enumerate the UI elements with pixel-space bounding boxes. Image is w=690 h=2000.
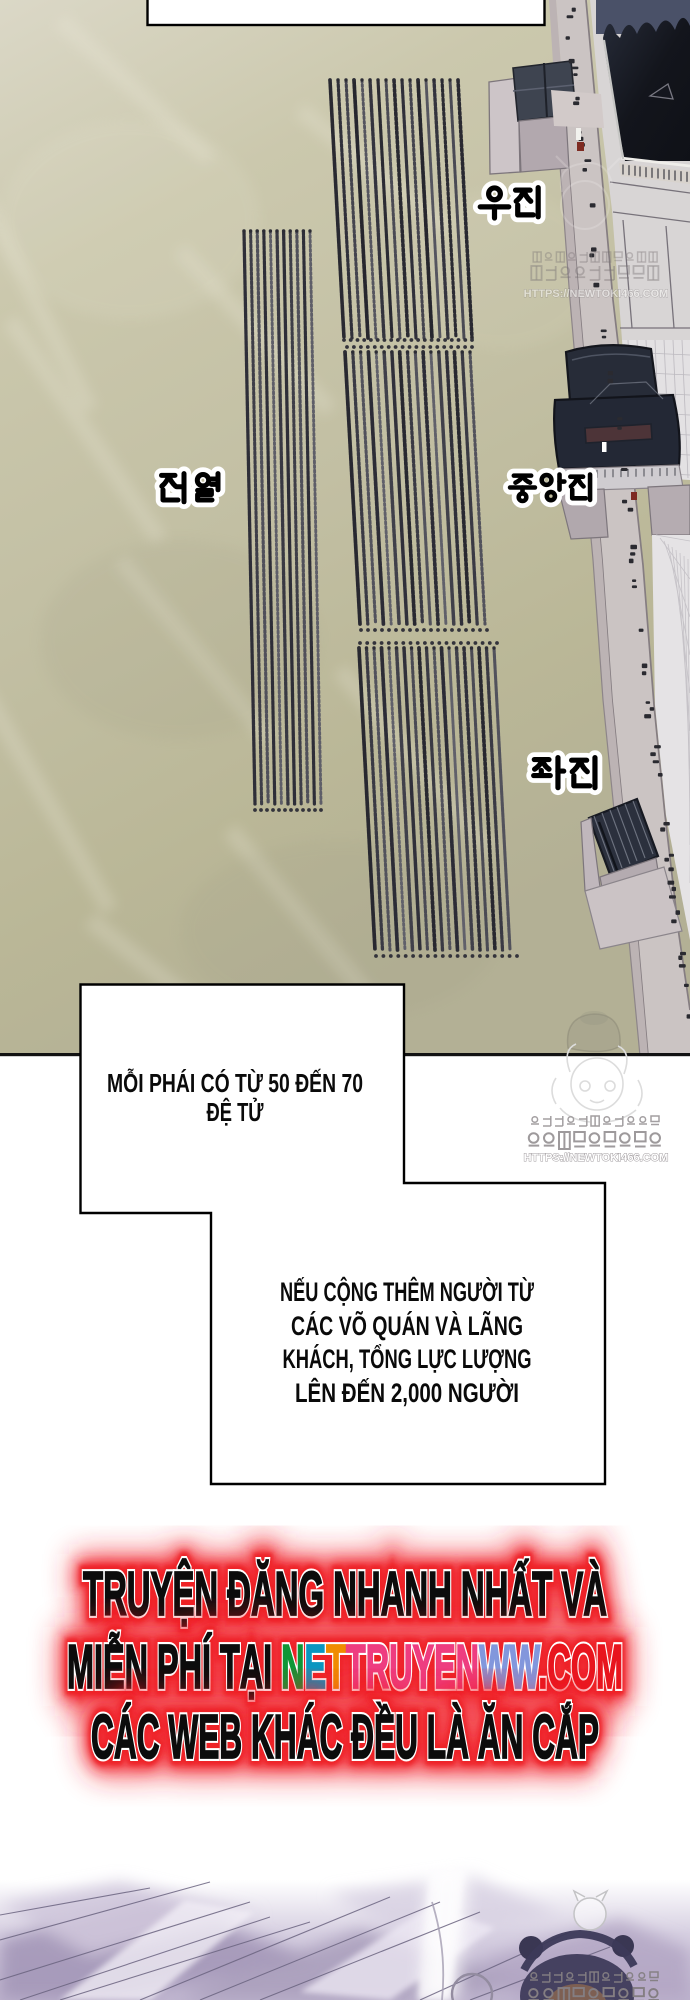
svg-text:ĐỆ TỬ: ĐỆ TỬ	[207, 1096, 264, 1127]
svg-text:NẾU CỘNG THÊM NGƯỜI TỪ: NẾU CỘNG THÊM NGƯỜI TỪ	[280, 1276, 534, 1307]
svg-text:HTTPS://NEWTOKI466.COM: HTTPS://NEWTOKI466.COM	[524, 288, 669, 300]
svg-text:CÁC VÕ QUÁN VÀ LÃNG: CÁC VÕ QUÁN VÀ LÃNG	[291, 1310, 523, 1341]
svg-text:MIỄN PHÍ TẠI NETTRUYENWW.COM: MIỄN PHÍ TẠI NETTRUYENWW.COM	[67, 1633, 623, 1702]
svg-text:KHÁCH, TỔNG LỰC LƯỢNG: KHÁCH, TỔNG LỰC LƯỢNG	[283, 1343, 532, 1374]
svg-text:MỖI PHÁI CÓ TỪ 50 ĐẾN 70: MỖI PHÁI CÓ TỪ 50 ĐẾN 70	[107, 1068, 363, 1098]
svg-text:CÁC WEB KHÁC ĐỀU LÀ ĂN CẮP: CÁC WEB KHÁC ĐỀU LÀ ĂN CẮP	[91, 1703, 599, 1772]
svg-text:HTTPS://NEWTOKI466.COM: HTTPS://NEWTOKI466.COM	[524, 1152, 669, 1164]
svg-text:TRUYỆN ĐĂNG NHANH NHẤT VÀ: TRUYỆN ĐĂNG NHANH NHẤT VÀ	[83, 1560, 607, 1629]
svg-text:LÊN ĐẾN 2,000 NGƯỜI: LÊN ĐẾN 2,000 NGƯỜI	[295, 1377, 519, 1408]
